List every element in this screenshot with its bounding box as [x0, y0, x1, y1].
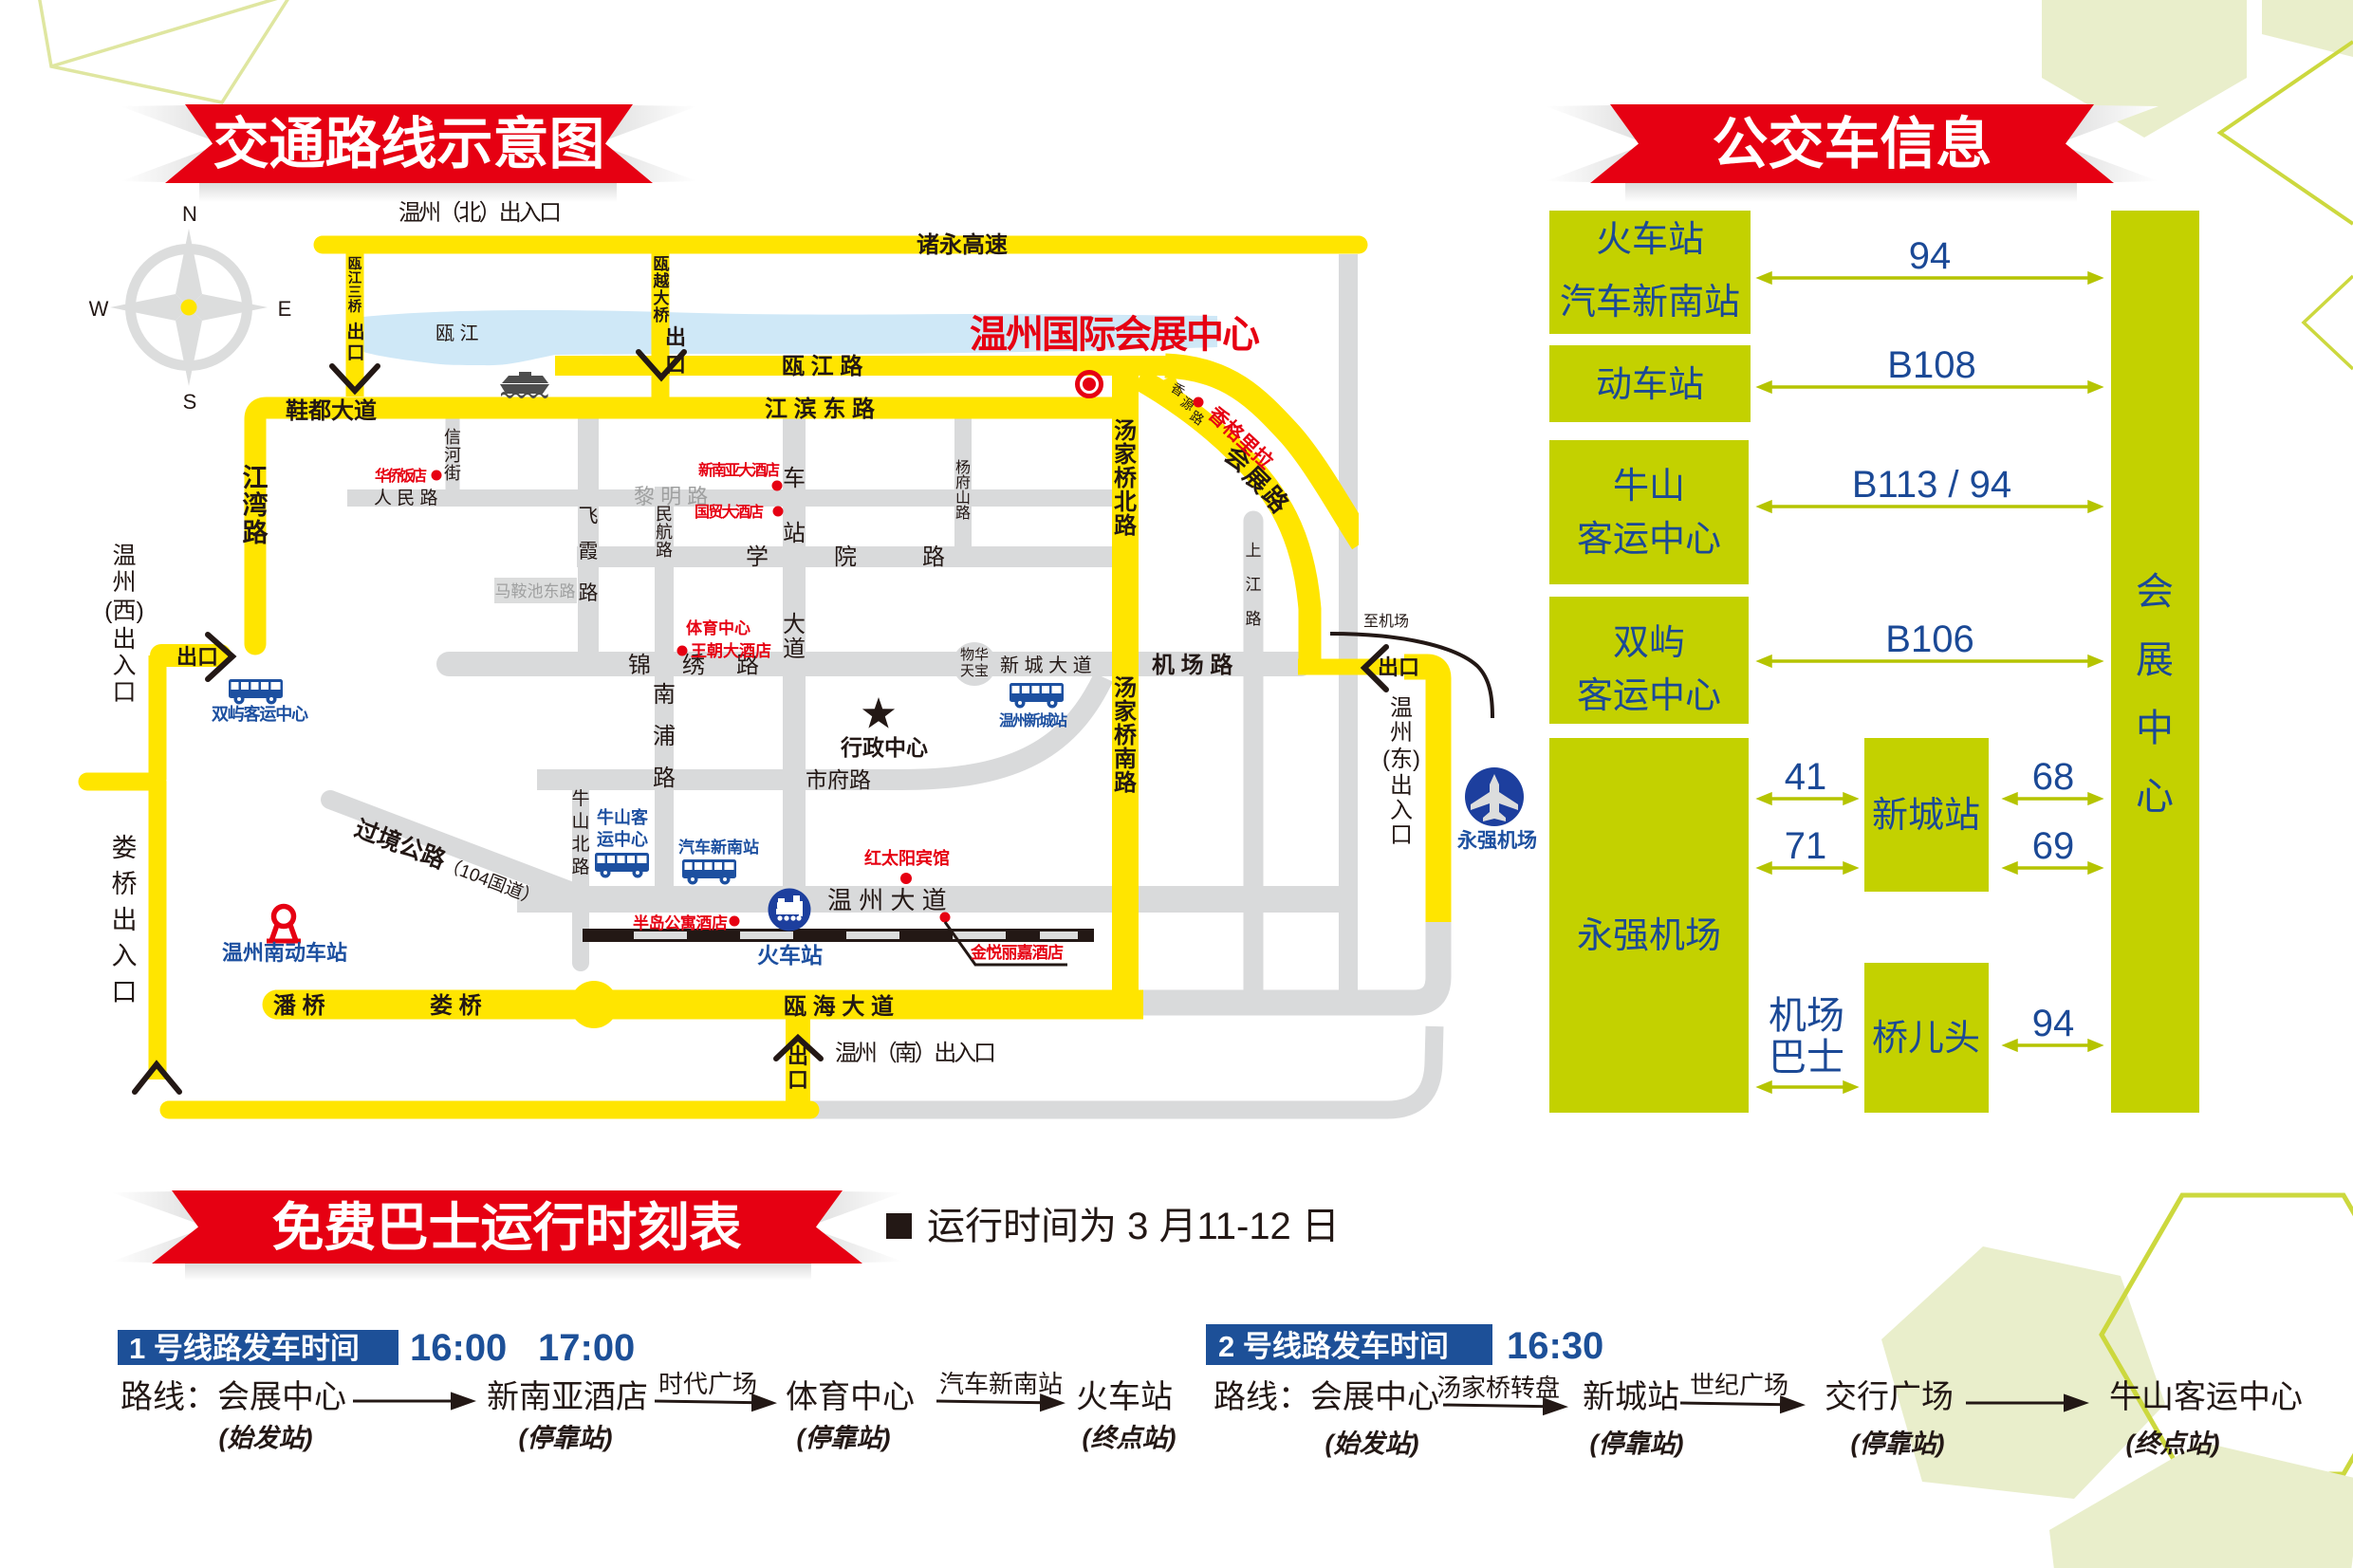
svg-text:体育中心: 体育中心 [686, 618, 750, 637]
svg-text:王朝大酒店: 王朝大酒店 [691, 641, 771, 660]
svg-text:牛山客运中心: 牛山客运中心 [2109, 1379, 2303, 1415]
svg-text:火车站: 火车站 [757, 943, 823, 968]
svg-text:信: 信 [444, 428, 461, 447]
svg-text:行政中心: 行政中心 [840, 735, 928, 760]
svg-text:口: 口 [665, 353, 686, 377]
svg-text:路: 路 [653, 766, 676, 791]
svg-text:(停靠站): (停靠站) [519, 1424, 613, 1452]
svg-text:桥: 桥 [348, 298, 362, 315]
svg-text:新南亚酒店: 新南亚酒店 [487, 1379, 648, 1415]
svg-text:路: 路 [955, 505, 971, 522]
svg-text:路: 路 [579, 582, 599, 604]
svg-text:(停靠站): (停靠站) [797, 1424, 891, 1452]
svg-text:口: 口 [112, 978, 138, 1006]
svg-text:新城站: 新城站 [1583, 1379, 1679, 1415]
svg-text:诸永高速: 诸永高速 [917, 231, 1008, 258]
svg-text:江: 江 [243, 464, 269, 492]
svg-text:交通路线示意图: 交通路线示意图 [213, 113, 604, 175]
svg-text:体育中心: 体育中心 [786, 1379, 915, 1415]
svg-text:路: 路 [243, 518, 269, 547]
svg-text:(停靠站): (停靠站) [1590, 1430, 1684, 1458]
svg-text:瓯 江 路: 瓯 江 路 [782, 353, 863, 379]
svg-text:(始发站): (始发站) [219, 1424, 313, 1452]
svg-text:江: 江 [1246, 576, 1262, 594]
svg-text:江: 江 [348, 269, 362, 286]
svg-text:双屿: 双屿 [1613, 623, 1685, 663]
svg-text:市府路: 市府路 [806, 767, 871, 792]
svg-text:杨: 杨 [955, 459, 971, 476]
svg-text:桥: 桥 [1114, 466, 1138, 491]
svg-text:航: 航 [656, 523, 673, 542]
svg-text:会: 会 [2136, 571, 2174, 613]
svg-text:民: 民 [656, 505, 673, 524]
svg-text:温州（北）出入口: 温州（北）出入口 [398, 200, 562, 226]
svg-text:河: 河 [444, 446, 461, 465]
svg-text:瓯 海 大 道: 瓯 海 大 道 [784, 993, 894, 1020]
svg-text:华侨饭店: 华侨饭店 [375, 467, 427, 485]
svg-text:越: 越 [653, 271, 671, 290]
svg-text:娄: 娄 [112, 834, 138, 862]
svg-text:新城站: 新城站 [1872, 796, 1980, 836]
svg-text:94: 94 [2032, 1003, 2075, 1044]
svg-text:牛山客: 牛山客 [597, 807, 649, 827]
svg-text:B106: B106 [1885, 618, 1973, 660]
svg-text:B108: B108 [1887, 344, 1975, 386]
svg-text:巴士: 巴士 [1769, 1037, 1844, 1079]
svg-text:湾: 湾 [243, 490, 269, 520]
svg-text:中: 中 [2136, 708, 2174, 749]
svg-text:口: 口 [1390, 822, 1413, 848]
svg-text:南: 南 [1114, 747, 1137, 772]
svg-text:展: 展 [2136, 639, 2174, 681]
svg-text:41: 41 [1785, 756, 1827, 798]
svg-text:E: E [278, 297, 292, 321]
svg-text:温州（南）出入口: 温州（南）出入口 [835, 1041, 996, 1066]
svg-text:浦: 浦 [653, 724, 676, 749]
svg-text:三: 三 [348, 286, 362, 301]
svg-text:永强机场: 永强机场 [1577, 916, 1721, 956]
svg-text:物华: 物华 [960, 647, 989, 663]
svg-text:车: 车 [783, 466, 806, 491]
svg-text:1 号线路发车时间: 1 号线路发车时间 [129, 1332, 360, 1365]
svg-text:至机场: 至机场 [1363, 613, 1409, 630]
svg-text:客运中心: 客运中心 [1577, 520, 1721, 560]
svg-text:世纪广场: 世纪广场 [1690, 1371, 1788, 1399]
svg-text:人 民 路: 人 民 路 [374, 488, 438, 508]
svg-text:(东): (东) [1382, 747, 1420, 772]
svg-text:汤家桥转盘: 汤家桥转盘 [1436, 1374, 1560, 1402]
svg-text:出口: 出口 [176, 645, 218, 669]
svg-text:站: 站 [783, 521, 806, 546]
svg-text:府: 府 [955, 474, 971, 491]
svg-text:半岛公寓酒店: 半岛公寓酒店 [633, 913, 728, 932]
svg-text:入: 入 [112, 942, 138, 970]
svg-text:94: 94 [1909, 235, 1952, 277]
svg-text:汽车新南站: 汽车新南站 [939, 1370, 1063, 1398]
svg-text:汤: 汤 [1114, 418, 1137, 444]
svg-text:院: 院 [834, 544, 857, 570]
svg-text:W: W [89, 297, 109, 321]
svg-text:(停靠站): (停靠站) [1851, 1430, 1945, 1458]
svg-text:上: 上 [1246, 542, 1262, 560]
svg-text:出: 出 [1390, 773, 1413, 799]
svg-text:路: 路 [1114, 769, 1138, 796]
svg-text:口: 口 [787, 1068, 808, 1092]
svg-text:州: 州 [1390, 720, 1413, 746]
svg-text:新 城 大 道: 新 城 大 道 [1000, 655, 1092, 676]
svg-text:州: 州 [112, 569, 136, 596]
svg-text:天宝: 天宝 [960, 663, 989, 679]
svg-text:出口: 出口 [1378, 655, 1419, 679]
svg-text:机场: 机场 [1769, 995, 1844, 1037]
svg-text:双屿客运中心: 双屿客运中心 [212, 704, 308, 724]
svg-text:(西): (西) [104, 598, 144, 624]
svg-text:运中心: 运中心 [597, 829, 648, 849]
svg-text:16:00: 16:00 [410, 1327, 507, 1369]
svg-text:温州南动车站: 温州南动车站 [222, 941, 347, 965]
svg-text:路: 路 [571, 857, 589, 877]
svg-text:霞: 霞 [579, 541, 599, 563]
svg-text:家: 家 [1114, 441, 1137, 468]
svg-text:桥: 桥 [112, 870, 138, 898]
svg-text:免费巴士运行时刻表: 免费巴士运行时刻表 [271, 1198, 741, 1257]
svg-text:永强机场: 永强机场 [1456, 829, 1537, 852]
svg-text:温州国际会展中心: 温州国际会展中心 [970, 314, 1260, 356]
svg-text:路: 路 [1246, 610, 1262, 628]
svg-text:瓯 江: 瓯 江 [435, 323, 479, 344]
svg-text:金悦丽嘉酒店: 金悦丽嘉酒店 [970, 943, 1064, 962]
svg-text:N: N [182, 202, 197, 226]
svg-text:路: 路 [656, 541, 673, 560]
svg-text:汽车新南站: 汽车新南站 [1560, 283, 1740, 323]
svg-text:江 滨 东 路: 江 滨 东 路 [765, 396, 876, 422]
svg-text:山: 山 [955, 489, 971, 507]
svg-text:出: 出 [665, 325, 686, 349]
svg-text:口: 口 [346, 343, 364, 363]
svg-text:大: 大 [654, 288, 670, 307]
svg-text:入: 入 [112, 653, 136, 679]
svg-text:公交车信息: 公交车信息 [1712, 113, 1992, 175]
svg-text:潘 桥: 潘 桥 [273, 992, 326, 1019]
svg-text:桥儿头: 桥儿头 [1872, 1019, 1980, 1059]
svg-text:68: 68 [2032, 756, 2075, 798]
svg-text:温 州 大 道: 温 州 大 道 [827, 886, 947, 914]
svg-text:路: 路 [1114, 512, 1138, 539]
svg-text:69: 69 [2032, 825, 2075, 867]
svg-text:桥: 桥 [654, 306, 671, 324]
svg-text:新南亚大酒店: 新南亚大酒店 [698, 461, 780, 479]
svg-text:马鞍池东路: 马鞍池东路 [495, 582, 576, 600]
svg-text:鞋都大道: 鞋都大道 [286, 397, 377, 424]
svg-text:汽车新南站: 汽车新南站 [678, 838, 759, 857]
svg-text:71: 71 [1785, 825, 1827, 867]
svg-text:牛山: 牛山 [1613, 467, 1685, 507]
svg-text:学: 学 [746, 544, 769, 570]
svg-text:飞: 飞 [579, 506, 599, 527]
svg-text:入: 入 [1390, 798, 1413, 823]
svg-text:街: 街 [444, 464, 461, 483]
svg-text:2 号线路发车时间: 2 号线路发车时间 [1218, 1330, 1449, 1363]
svg-text:时代广场: 时代广场 [658, 1370, 757, 1398]
svg-text:瓯: 瓯 [654, 255, 670, 273]
svg-text:(终点站): (终点站) [1083, 1424, 1176, 1452]
svg-text:17:00: 17:00 [538, 1327, 635, 1369]
svg-text:北: 北 [571, 834, 589, 855]
svg-text:(始发站): (始发站) [1325, 1430, 1419, 1458]
svg-text:家: 家 [1114, 698, 1137, 725]
svg-text:机 场 路: 机 场 路 [1152, 652, 1233, 678]
svg-text:国贸大酒店: 国贸大酒店 [695, 503, 764, 521]
svg-text:大: 大 [783, 612, 806, 637]
svg-text:汤: 汤 [1114, 675, 1137, 701]
svg-text:口: 口 [112, 679, 136, 706]
svg-text:出: 出 [112, 626, 136, 653]
svg-text:客运中心: 客运中心 [1577, 676, 1721, 716]
svg-text:(终点站): (终点站) [2126, 1430, 2220, 1458]
svg-text:路: 路 [922, 544, 945, 570]
svg-text:南: 南 [653, 682, 676, 708]
svg-text:16:30: 16:30 [1507, 1325, 1603, 1367]
svg-text:出: 出 [112, 906, 138, 934]
svg-text:桥: 桥 [1114, 723, 1138, 748]
svg-text:出: 出 [346, 321, 364, 342]
svg-text:瓯: 瓯 [348, 256, 362, 272]
svg-text:火车站: 火车站 [1076, 1379, 1173, 1415]
svg-text:交行广场: 交行广场 [1825, 1379, 1954, 1415]
svg-text:北: 北 [1114, 489, 1137, 515]
svg-text:娄 桥: 娄 桥 [430, 993, 483, 1019]
svg-text:B113 / 94: B113 / 94 [1852, 464, 2011, 506]
svg-text:红太阳宾馆: 红太阳宾馆 [864, 848, 950, 868]
svg-text:路线：会展中心: 路线：会展中心 [120, 1379, 346, 1415]
svg-text:锦: 锦 [628, 653, 651, 678]
svg-text:路线：会展中心: 路线：会展中心 [1214, 1379, 1439, 1415]
svg-text:道: 道 [783, 636, 806, 662]
svg-text:温州新城站: 温州新城站 [998, 711, 1067, 729]
svg-text:牛: 牛 [571, 788, 589, 809]
svg-text:运行时间为 3 月11-12 日: 运行时间为 3 月11-12 日 [927, 1206, 1340, 1247]
svg-text:山: 山 [571, 811, 589, 832]
svg-text:S: S [183, 390, 197, 414]
svg-text:出: 出 [787, 1044, 808, 1068]
svg-text:温: 温 [1390, 695, 1413, 721]
svg-text:火车站: 火车站 [1596, 220, 1704, 260]
svg-text:温: 温 [112, 543, 136, 569]
svg-text:心: 心 [2136, 776, 2174, 818]
svg-text:动车站: 动车站 [1596, 365, 1704, 405]
